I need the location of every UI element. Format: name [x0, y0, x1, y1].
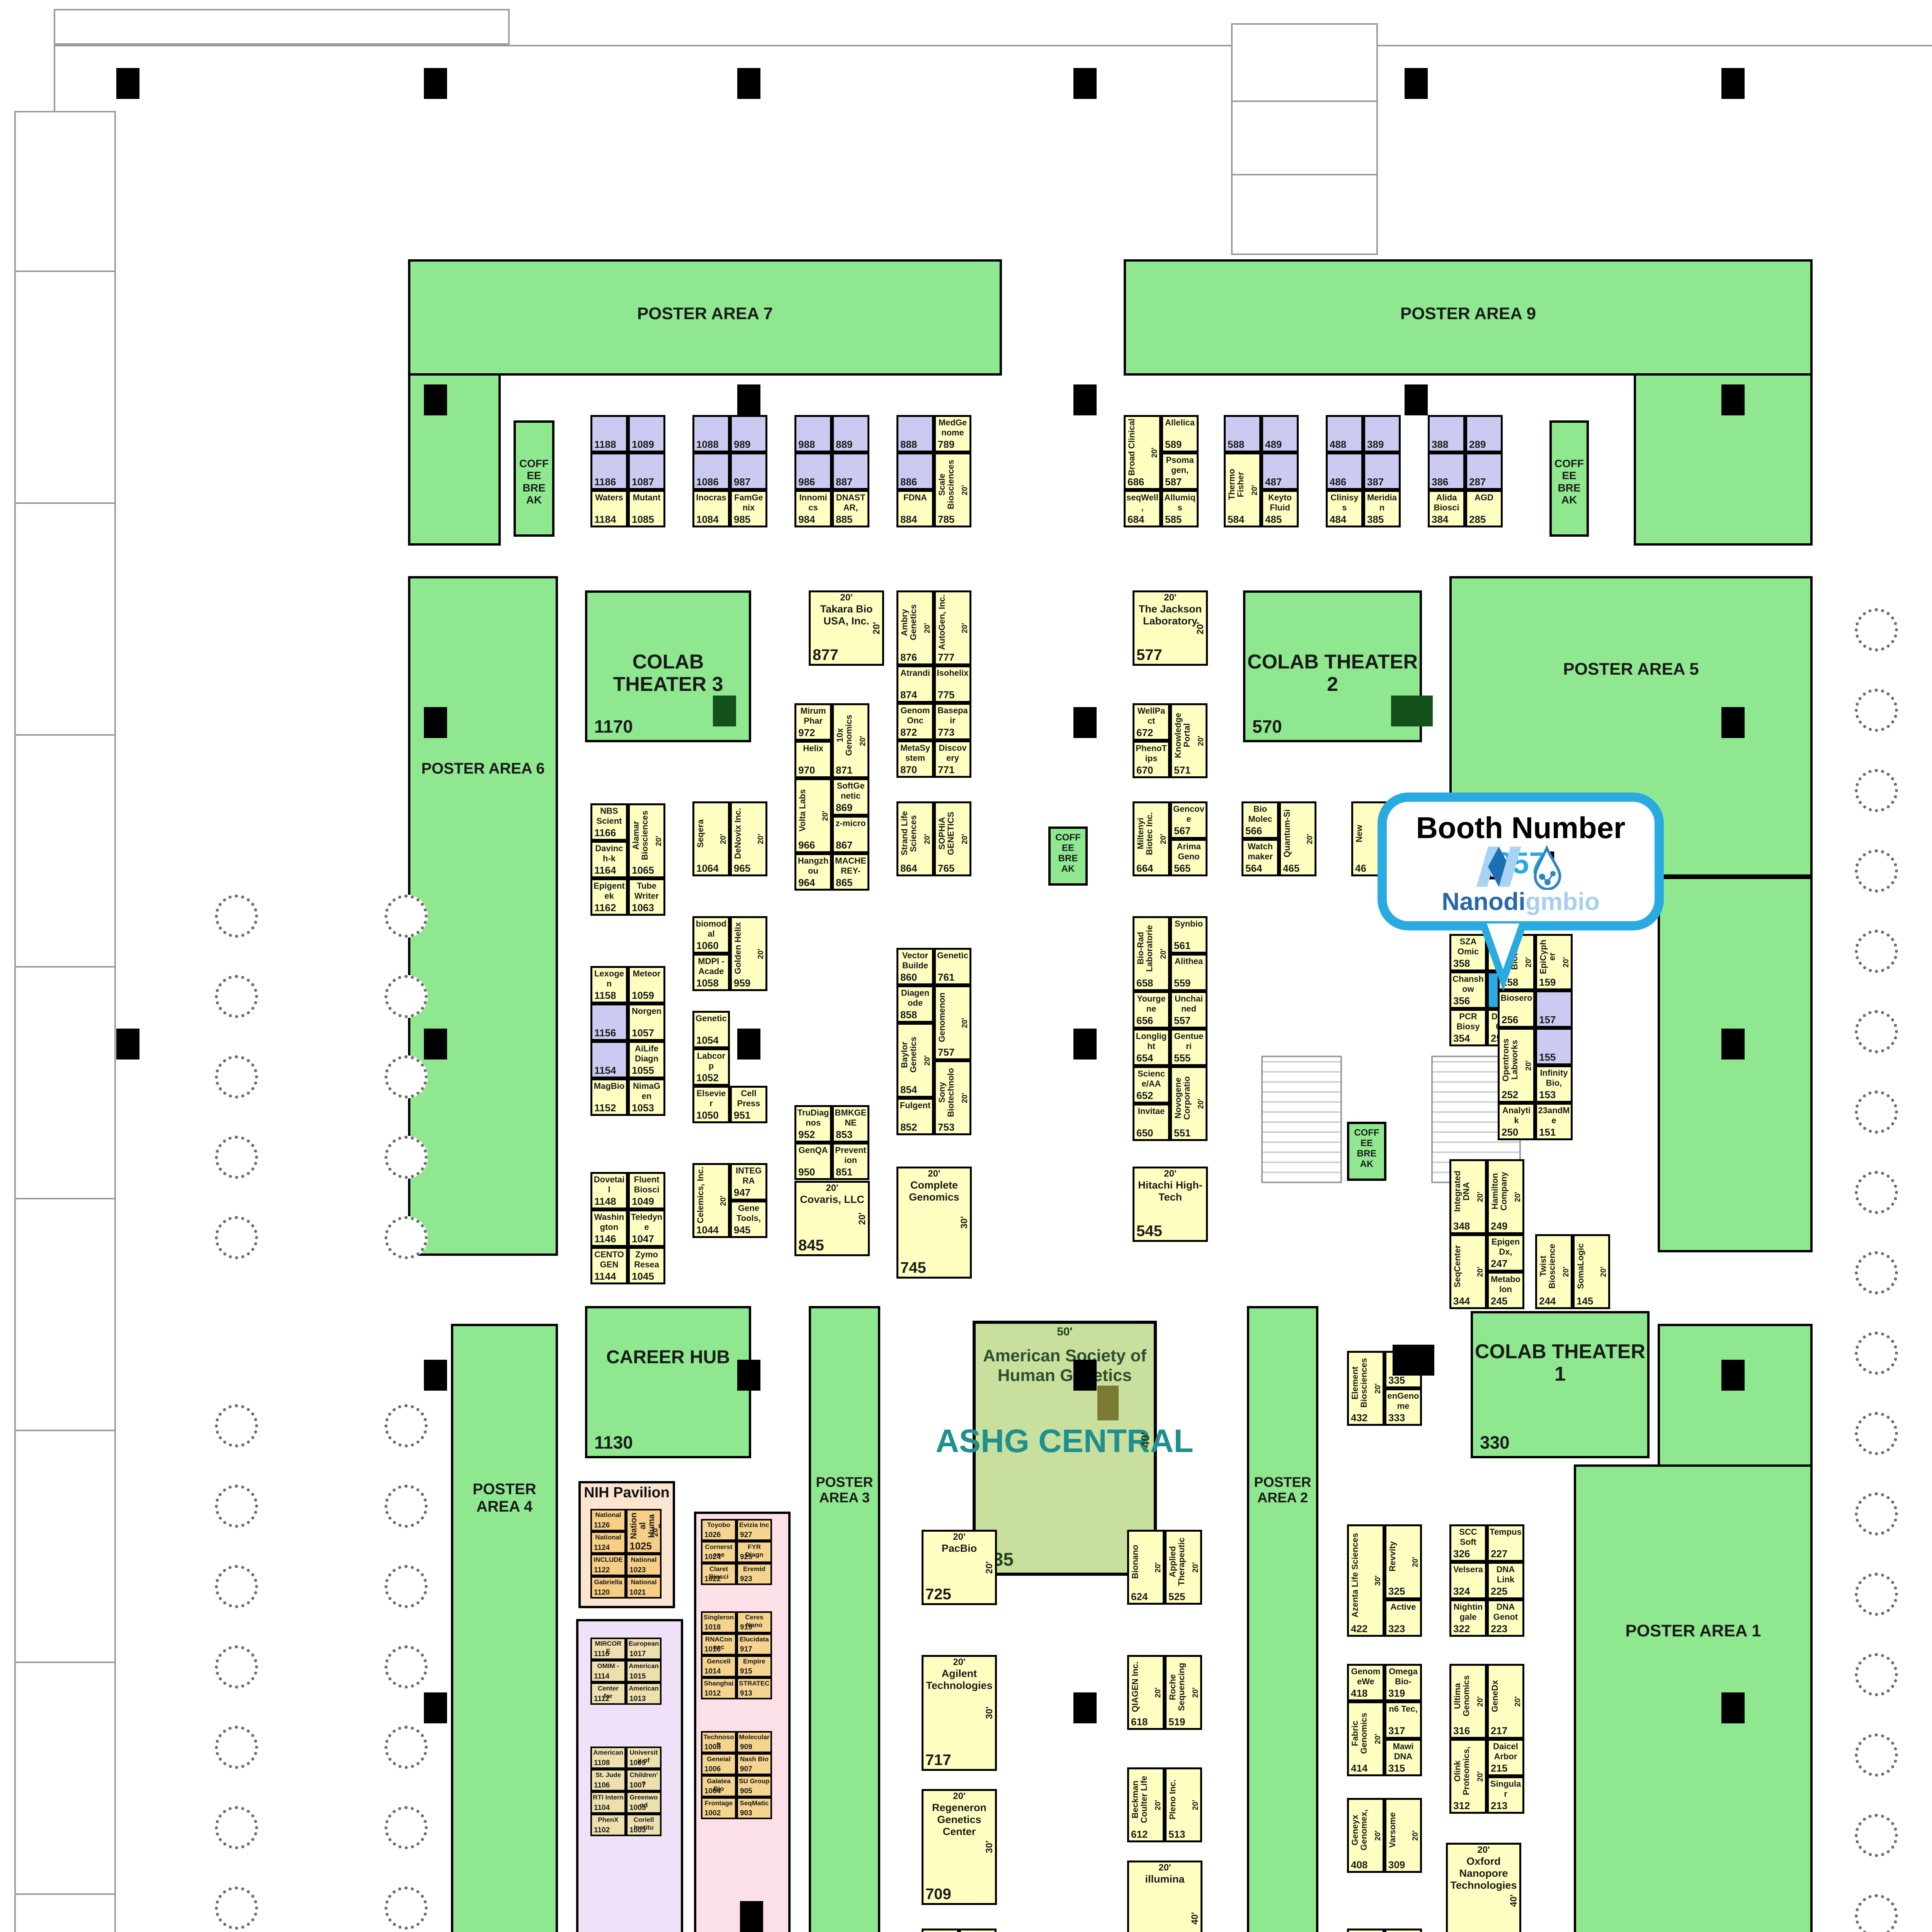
booth-1154[interactable]: 1154 — [590, 1041, 628, 1078]
booth-number: 1063 — [632, 902, 654, 914]
booth-1126[interactable]: National1126 — [590, 1509, 626, 1531]
booth-1065[interactable]: Alamar Biosciences20'1065 — [628, 803, 665, 878]
booth-1006[interactable]: Geneial1006 — [701, 1753, 736, 1775]
booth-1059[interactable]: Meteor1059 — [628, 966, 665, 1003]
booth-305[interactable]: BD Life305 — [1384, 1929, 1422, 1932]
booth-number: 672 — [1136, 727, 1153, 739]
booth-249[interactable]: Hamilton Company20'249 — [1487, 1159, 1524, 1234]
booth-905[interactable]: SU Group905 — [736, 1775, 772, 1797]
booth-1162[interactable]: Epigentek1162 — [590, 878, 628, 916]
booth-486[interactable]: 486 — [1326, 452, 1363, 490]
booth-513[interactable]: Pleno Inc.20'513 — [1165, 1767, 1202, 1842]
wall-line — [1231, 174, 1378, 175]
booth-551[interactable]: Novogene Corporatio20'551 — [1170, 1066, 1207, 1141]
booth-408[interactable]: Geneyx Genomex,20'408 — [1347, 1798, 1384, 1873]
booth-1104[interactable]: RTI Intern1104 — [590, 1791, 626, 1814]
booth-852[interactable]: Fulgent852 — [896, 1098, 934, 1135]
booth-1148[interactable]: Dovetail1148 — [590, 1172, 628, 1209]
booth-927[interactable]: Evizia Inc927 — [736, 1519, 772, 1541]
booth-519[interactable]: Roche Sequencing20'519 — [1165, 1655, 1202, 1730]
booth-1002[interactable]: Frontage1002 — [701, 1797, 736, 1819]
booth-1045[interactable]: Zymo Resea1045 — [628, 1247, 665, 1284]
zone-number: 1170 — [594, 716, 633, 737]
booth-654[interactable]: Longlight654 — [1133, 1029, 1170, 1066]
booth-number: 1156 — [594, 1027, 616, 1039]
booth-489[interactable]: 489 — [1261, 415, 1299, 452]
booth-1012[interactable]: Shanghai1012 — [701, 1677, 736, 1699]
booth-dimension: 20' — [961, 803, 969, 874]
booth-1016[interactable]: RNAConnec1016 — [701, 1633, 736, 1655]
zone-label: COFF EE BRE AK — [1552, 457, 1587, 506]
booth-947[interactable]: INTEGRA947 — [730, 1163, 767, 1201]
booth-959[interactable]: Golden Helix20'959 — [730, 916, 767, 991]
booth-1004[interactable]: Galatea Bio1004 — [701, 1775, 736, 1797]
booth-1015[interactable]: American1015 — [626, 1660, 662, 1682]
booth-217[interactable]: GeneDx20'217 — [1487, 1664, 1524, 1739]
booth-1058[interactable]: MDPI - Acade1058 — [692, 954, 730, 991]
pillar-theater — [1410, 696, 1433, 726]
booth-907[interactable]: Nash Bio907 — [736, 1753, 772, 1775]
booth-385[interactable]: Meridian385 — [1363, 490, 1401, 527]
booth-987[interactable]: 987 — [730, 452, 767, 490]
booth-name: Bio Molec — [1243, 803, 1277, 824]
booth-number: 970 — [798, 764, 815, 776]
booth-684[interactable]: seqWell,684 — [1124, 490, 1161, 527]
booth-884[interactable]: FDNA884 — [896, 490, 934, 527]
booth-885[interactable]: DNASTAR,885 — [832, 490, 869, 527]
booth-number: 487 — [1265, 476, 1282, 488]
booth-384[interactable]: Alida Biosci384 — [1428, 490, 1465, 527]
booth-664[interactable]: Miltenyi Biotec Inc.20'664 — [1133, 801, 1170, 876]
booth-1144[interactable]: CENTOGEN1144 — [590, 1247, 628, 1284]
booth-dimension: 20' — [984, 1532, 995, 1603]
booth-765[interactable]: SOPHiA GENETICS20'765 — [934, 801, 971, 876]
booth-name: FamGenix — [732, 492, 765, 513]
booth-1086[interactable]: 1086 — [692, 452, 730, 490]
booth-dimension: 20' — [961, 592, 969, 663]
booth-157[interactable]: 157 — [1535, 990, 1573, 1028]
booth-388[interactable]: 388 — [1428, 415, 1465, 452]
booth-1057[interactable]: Norgen1057 — [628, 1003, 665, 1041]
booth-dimension: 20' — [757, 918, 765, 989]
booth-851[interactable]: Prevention851 — [832, 1143, 869, 1180]
booth-577[interactable]: 20'The Jackson Laboratory20'577 — [1133, 590, 1208, 666]
booth-1014[interactable]: Gencell1014 — [701, 1655, 736, 1677]
booth-dimension: 20' — [1195, 592, 1206, 664]
booth-1156[interactable]: 1156 — [590, 1003, 628, 1041]
booth-925[interactable]: FYR Diagn925 — [736, 1541, 772, 1563]
booth-703[interactable]: Parse Bioscience20'703 — [959, 1929, 997, 1932]
booth-964[interactable]: Hangzhou964 — [794, 853, 832, 891]
ashg-dim-right: 40' — [1139, 1432, 1152, 1448]
booth-223[interactable]: DNA Genot223 — [1487, 1599, 1524, 1637]
booth-247[interactable]: EpigenDx,247 — [1487, 1234, 1524, 1272]
booth-number: 870 — [900, 764, 917, 776]
booth-1013[interactable]: American1013 — [626, 1682, 662, 1705]
booth-854[interactable]: Baylor Genetics20'854 — [896, 1023, 934, 1098]
booth-dimension: 20' — [961, 987, 969, 1058]
booth-316[interactable]: Ultima Genomics20'316 — [1449, 1664, 1487, 1739]
booth-1085[interactable]: Mutant1085 — [628, 490, 665, 527]
booth-1106[interactable]: St. Jude1106 — [590, 1769, 626, 1791]
booth-dimension: 30' — [984, 1657, 995, 1769]
booth-488[interactable]: 488 — [1326, 415, 1363, 452]
booth-dimension: 20' — [871, 592, 882, 664]
booth-1009[interactable]: University of1009 — [626, 1747, 662, 1769]
booth-1064[interactable]: Seqera20'1064 — [692, 801, 730, 876]
booth-658[interactable]: Bio-Rad Laboratorie20'658 — [1133, 916, 1170, 991]
booth-number: 860 — [900, 971, 917, 983]
booth-923[interactable]: Eremid923 — [736, 1563, 772, 1585]
booth-213[interactable]: Singular213 — [1487, 1776, 1524, 1814]
booth-289[interactable]: 289 — [1465, 415, 1503, 452]
booth-389[interactable]: 389 — [1363, 415, 1401, 452]
booth-1089[interactable]: 1089 — [628, 415, 665, 452]
booth-1112[interactable]: Center for1112 — [590, 1682, 626, 1705]
round-table — [215, 1726, 258, 1769]
round-table — [215, 1136, 258, 1179]
booth-326[interactable]: SCC Soft326 — [1449, 1524, 1487, 1562]
booth-988[interactable]: 988 — [794, 415, 832, 452]
booth-1146[interactable]: Washington1146 — [590, 1209, 628, 1247]
booth-860[interactable]: Vector Builde860 — [896, 948, 934, 985]
booth-432[interactable]: Element Biosciences20'432 — [1347, 1351, 1384, 1426]
booth-315[interactable]: Mawi DNA315 — [1384, 1739, 1422, 1776]
booth-802[interactable]: DNAnexus20'802 — [922, 1929, 959, 1932]
booth-number: 966 — [798, 839, 815, 851]
zone-poster-area-7[interactable]: POSTER AREA 7 — [408, 259, 1002, 376]
booth-325[interactable]: Revvity20'325 — [1384, 1524, 1422, 1599]
booth-618[interactable]: QIAGEN Inc.20'618 — [1127, 1655, 1165, 1730]
booth-503[interactable]: 20'illumina40'503 — [1127, 1861, 1202, 1932]
booth-1108[interactable]: American1108 — [590, 1747, 626, 1769]
booth-145[interactable]: SomaLogic20'145 — [1573, 1234, 1610, 1309]
booth-1188[interactable]: 1188 — [590, 415, 628, 452]
zone-poster-area-6[interactable]: POSTER AREA 6 — [408, 576, 558, 1256]
booth-414[interactable]: Fabric Genomics20'414 — [1347, 1701, 1384, 1776]
booth-1054[interactable]: Genetic1054 — [692, 1011, 730, 1048]
booth-name: Applied Therapeutic — [1168, 1533, 1189, 1590]
booth-559[interactable]: Alithea559 — [1170, 954, 1207, 991]
booth-1184[interactable]: Waters1184 — [590, 490, 628, 527]
booth-564[interactable]: Watchmaker564 — [1242, 839, 1279, 876]
booth-153[interactable]: Infinity Bio,153 — [1535, 1065, 1573, 1103]
booth-1025[interactable]: National Human20'1025 — [626, 1509, 662, 1554]
booth-1186[interactable]: 1186 — [590, 452, 628, 490]
booth-1164[interactable]: Davinch-k1164 — [590, 841, 628, 878]
booth-652[interactable]: Science/AA652 — [1133, 1066, 1170, 1104]
booth-589[interactable]: Allelica589 — [1161, 415, 1199, 452]
zone-poster-area-4[interactable]: POSTER AREA 4 — [451, 1324, 558, 1932]
booth-215[interactable]: Daicel Arbor215 — [1487, 1739, 1524, 1776]
booth-1122[interactable]: INCLUDE1122 — [590, 1554, 626, 1576]
booth-585[interactable]: Allumiqs585 — [1161, 490, 1199, 527]
booth-1060[interactable]: biomodal1060 — [692, 916, 730, 954]
booth-753[interactable]: Sony Biotechnolo20'753 — [934, 1060, 971, 1135]
booth-name: Celemics, Inc. — [696, 1167, 716, 1224]
booth-870[interactable]: MetaSystem870 — [896, 740, 934, 778]
booth-1124[interactable]: National1124 — [590, 1531, 626, 1554]
booth-565[interactable]: Arima Geno565 — [1170, 839, 1207, 876]
booth-1047[interactable]: Teledyne1047 — [628, 1209, 665, 1247]
booth-number: 1005 — [629, 1804, 646, 1812]
booth-227[interactable]: Tempus227 — [1487, 1524, 1524, 1562]
booth-650[interactable]: Invitae650 — [1133, 1104, 1170, 1141]
booth-name: Gentueri — [1172, 1031, 1206, 1051]
booth-561[interactable]: Synbio561 — [1170, 916, 1207, 954]
booth-name: St. Jude — [592, 1770, 624, 1779]
booth-853[interactable]: BMKGENE853 — [832, 1105, 869, 1143]
booth-number: 656 — [1136, 1015, 1153, 1027]
booth-1007[interactable]: Children's1007 — [626, 1769, 662, 1791]
booth-name: Novogene Corporatio — [1173, 1070, 1194, 1127]
booth-984[interactable]: Innomics984 — [794, 490, 832, 527]
booth-587[interactable]: Psomagen,587 — [1161, 452, 1199, 490]
booth-864[interactable]: Strand Life Sciences20'864 — [896, 801, 934, 876]
booth-945[interactable]: Gene Tools,945 — [730, 1201, 767, 1238]
booth-874[interactable]: Atrandi874 — [896, 665, 934, 703]
booth-number: 484 — [1330, 514, 1346, 526]
booth-386[interactable]: 386 — [1428, 452, 1465, 490]
booth-322[interactable]: Nightingale322 — [1449, 1599, 1487, 1637]
booth-785[interactable]: Scale Biosciences20'785 — [934, 452, 971, 527]
booth-566[interactable]: Bio Molec566 — [1242, 801, 1279, 839]
pillar — [1405, 68, 1428, 99]
booth-1018[interactable]: Singleron1018 — [701, 1611, 736, 1633]
booth-886[interactable]: 886 — [896, 452, 934, 490]
booth-686[interactable]: Broad Clinical20'686 — [1124, 415, 1161, 490]
zone-poster-area-1[interactable]: POSTER AREA 1 — [1574, 1464, 1813, 1932]
booth-867[interactable]: z-micro867 — [832, 816, 869, 853]
booth-256[interactable]: Biosero256 — [1498, 990, 1535, 1028]
booth-903[interactable]: SeqMatic903 — [736, 1797, 772, 1819]
booth-557[interactable]: Unchained557 — [1170, 991, 1207, 1029]
booth-672[interactable]: WellPact672 — [1133, 703, 1170, 741]
booth-877[interactable]: 20'Takara Bio USA, Inc.20'877 — [809, 590, 884, 666]
booth-624[interactable]: Bionano20'624 — [1127, 1530, 1165, 1605]
booth-869[interactable]: SoftGenetic869 — [832, 778, 869, 816]
booth-588[interactable]: 588 — [1224, 415, 1261, 452]
booth-871[interactable]: 10x Genomics20'871 — [832, 703, 869, 778]
booth-name: AGD — [1467, 492, 1501, 503]
round-table — [1855, 689, 1898, 732]
booth-number: 1054 — [696, 1034, 719, 1046]
booth-1023[interactable]: National1023 — [626, 1554, 662, 1576]
booth-285[interactable]: AGD285 — [1465, 490, 1503, 527]
booth-309[interactable]: Varsome20'309 — [1384, 1798, 1422, 1873]
booth-1084[interactable]: Inocras1084 — [692, 490, 730, 527]
booth-name: Geneial — [702, 1755, 735, 1763]
booth-612[interactable]: Beckman Coulter Life20'612 — [1127, 1767, 1165, 1842]
booth-name: Genetic — [936, 950, 969, 961]
booth-567[interactable]: Gencove567 — [1170, 801, 1207, 839]
zone-poster-area-9[interactable]: POSTER AREA 9 — [1124, 259, 1813, 376]
booth-number: 1050 — [696, 1109, 719, 1121]
booth-287[interactable]: 287 — [1465, 452, 1503, 490]
booth-1053[interactable]: NimaGen1053 — [628, 1078, 665, 1116]
booth-1003[interactable]: Coriell Institu1003 — [626, 1814, 662, 1836]
pillar — [1721, 1360, 1745, 1391]
zone-coffee-break-1[interactable]: COFF EE BRE AK — [514, 420, 554, 537]
booth-858[interactable]: Diagenode858 — [896, 985, 934, 1023]
booth-number: 853 — [836, 1129, 852, 1141]
booth-203[interactable]: 20'Oxford Nanopore Technologies40'203 — [1446, 1843, 1521, 1932]
booth-1017[interactable]: European1017 — [626, 1638, 662, 1660]
booth-777[interactable]: AutoGen, Inc.20'777 — [934, 590, 971, 665]
booth-name: Discovery — [936, 742, 969, 763]
booth-1088[interactable]: 1088 — [692, 415, 730, 452]
booth-525[interactable]: Applied Therapeutic20'525 — [1165, 1530, 1202, 1605]
booth-773[interactable]: Basepair773 — [934, 703, 971, 740]
booth-319[interactable]: Omega Bio-319 — [1384, 1664, 1422, 1701]
booth-317[interactable]: n6 Tec,317 — [1384, 1701, 1422, 1739]
booth-dimension: 40' — [1190, 1862, 1201, 1932]
booth-465[interactable]: Quantum-Si20'465 — [1279, 801, 1316, 876]
booth-909[interactable]: Molecular909 — [736, 1731, 772, 1753]
booth-354[interactable]: PCR Biosy354 — [1449, 1009, 1487, 1046]
booth-872[interactable]: GenomOnc872 — [896, 703, 934, 740]
booth-1008[interactable]: Technosoft1008 — [701, 1731, 736, 1753]
booth-1022[interactable]: Claret Biosci1022 — [701, 1563, 736, 1585]
booth-950[interactable]: GenQA950 — [794, 1143, 832, 1180]
booth-717[interactable]: 20'Agilent Technologies30'717 — [922, 1655, 997, 1771]
booth-159[interactable]: EpiCypher20'159 — [1535, 934, 1573, 990]
booth-151[interactable]: 23andMe151 — [1535, 1103, 1573, 1140]
booth-917[interactable]: Elucidata917 — [736, 1633, 772, 1655]
booth-155[interactable]: 155 — [1535, 1028, 1573, 1065]
booth-250[interactable]: Analytik250 — [1498, 1103, 1535, 1140]
booth-1049[interactable]: Fluent Biosci1049 — [628, 1172, 665, 1209]
booth-966[interactable]: Volta Labs20'966 — [794, 778, 832, 853]
booth-965[interactable]: DeNovix Inc.20'965 — [730, 801, 767, 876]
booth-number: 1146 — [594, 1233, 616, 1245]
booth-775[interactable]: Isohelix775 — [934, 665, 971, 703]
zone-poster-area-3[interactable]: POSTER AREA 3 — [809, 1306, 880, 1932]
booth-789[interactable]: MedGenome789 — [934, 415, 971, 452]
round-table — [384, 1216, 428, 1259]
booth-344[interactable]: SeqCenter20'344 — [1449, 1234, 1487, 1309]
booth-333[interactable]: enGenome333 — [1384, 1388, 1422, 1426]
booth-number: 1053 — [632, 1102, 654, 1114]
booth-919[interactable]: Ceres Nano919 — [736, 1611, 772, 1633]
booth-952[interactable]: TruDiagnos952 — [794, 1105, 832, 1143]
zone-coffee-break-2[interactable]: COFF EE BRE AK — [1549, 420, 1589, 537]
booth-1166[interactable]: NBS Scient1166 — [590, 803, 628, 841]
booth-1026[interactable]: Toyobo1026 — [701, 1519, 736, 1541]
booth-986[interactable]: 986 — [794, 452, 832, 490]
booth-252[interactable]: Opentrons Labworks20'252 — [1498, 1028, 1535, 1103]
booth-865[interactable]: MACHEREY-865 — [832, 853, 869, 891]
booth-972[interactable]: Mirum Phar972 — [794, 703, 832, 741]
booth-1152[interactable]: MagBio1152 — [590, 1078, 628, 1116]
booth-name: Frontage — [702, 1799, 735, 1807]
booth-number: 852 — [900, 1121, 917, 1133]
booth-876[interactable]: Ambry Genetics20'876 — [896, 590, 934, 665]
booth-1158[interactable]: Lexogen1158 — [590, 966, 628, 1003]
booth-915[interactable]: Empire915 — [736, 1655, 772, 1677]
booth-887[interactable]: 887 — [832, 452, 869, 490]
booth-1005[interactable]: Greenwood1005 — [626, 1791, 662, 1814]
booth-323[interactable]: Active323 — [1384, 1599, 1422, 1637]
booth-1024[interactable]: Cornerstone1024 — [701, 1541, 736, 1563]
round-table — [1855, 608, 1898, 651]
booth-422[interactable]: Azenta Life Sciences30'422 — [1347, 1524, 1384, 1637]
booth-485[interactable]: Keyto Fluid485 — [1261, 490, 1299, 527]
booth-244[interactable]: Twist Bioscience20'244 — [1535, 1234, 1573, 1309]
booth-1052[interactable]: Labcorp1052 — [692, 1048, 730, 1086]
booth-name: Fulgent — [898, 1100, 932, 1111]
booth-1044[interactable]: Celemics, Inc.20'1044 — [692, 1163, 730, 1238]
booth-725[interactable]: 20'PacBio20'725 — [922, 1530, 997, 1605]
booth-dimension: 20' — [1476, 1236, 1485, 1307]
booth-555[interactable]: Gentueri555 — [1170, 1029, 1207, 1066]
booth-1102[interactable]: PhenX1102 — [590, 1814, 626, 1836]
booth-name: Tempus — [1489, 1526, 1522, 1537]
booth-745[interactable]: 20'Complete Genomics30'745 — [896, 1167, 972, 1279]
booth-1063[interactable]: Tube Writer1063 — [628, 878, 665, 916]
zone-coffee-break-3[interactable]: COFF EE BRE AK — [1048, 827, 1088, 886]
booth-951[interactable]: Cell Press951 — [730, 1086, 767, 1123]
zone-colab-theater-1[interactable]: COLAB THEATER 1330 — [1471, 1311, 1650, 1458]
booth-487[interactable]: 487 — [1261, 452, 1299, 490]
booth-1050[interactable]: Elsevier1050 — [692, 1086, 730, 1123]
booth-1120[interactable]: Gabriella1120 — [590, 1576, 626, 1599]
booth-312[interactable]: Olink Proteomics,20'312 — [1449, 1739, 1487, 1814]
booth-889[interactable]: 889 — [832, 415, 869, 452]
zone-poster-area-2[interactable]: POSTER AREA 2 — [1247, 1306, 1318, 1932]
booth-name: seqWell, — [1126, 492, 1159, 513]
booth-245[interactable]: Metabolon245 — [1487, 1272, 1524, 1309]
booth-584[interactable]: Thermo Fisher20'584 — [1224, 452, 1261, 527]
booth-name: American — [628, 1662, 660, 1670]
expo-floorplan: 50' American Society of Human Genetics A… — [0, 0, 1932, 1932]
booth-name: GenomOnc — [898, 705, 932, 726]
booth-number: 225 — [1491, 1585, 1507, 1597]
booth-888[interactable]: 888 — [896, 415, 934, 452]
booth-913[interactable]: STRATEC913 — [736, 1677, 772, 1699]
zone-poster-area-5-leg[interactable] — [1658, 877, 1813, 1252]
booth-1087[interactable]: 1087 — [628, 452, 665, 490]
zone-career-hub[interactable]: CAREER HUB1130 — [585, 1306, 751, 1458]
booth-970[interactable]: Helix970 — [794, 741, 832, 778]
booth-761[interactable]: Genetic761 — [934, 948, 971, 985]
booth-number: 907 — [740, 1765, 752, 1774]
booth-845[interactable]: 20'Covaris, LLC20'845 — [794, 1181, 870, 1256]
booth-771[interactable]: Discovery771 — [934, 740, 971, 778]
booth-number: 652 — [1136, 1090, 1153, 1102]
booth-709[interactable]: 20'Regeneron Genetics Center30'709 — [922, 1789, 997, 1905]
zone-coffee-break-4[interactable]: COFF EE BRE AK — [1347, 1122, 1386, 1181]
booth-545[interactable]: 20'Hitachi High-Tech545 — [1133, 1167, 1208, 1242]
booth-1116[interactable]: MIRCORE1116 — [590, 1638, 626, 1660]
booth-324[interactable]: Velsera324 — [1449, 1562, 1487, 1599]
booth-348[interactable]: Integrated DNA20'348 — [1449, 1159, 1487, 1234]
booth-1021[interactable]: National1021 — [626, 1576, 662, 1599]
booth-670[interactable]: PhenoTips670 — [1133, 741, 1170, 778]
booth-989[interactable]: 989 — [730, 415, 767, 452]
booth-404[interactable]: Wasatch404 — [1347, 1929, 1384, 1932]
booth-1114[interactable]: OMIM -1114 — [590, 1660, 626, 1682]
booth-757[interactable]: Genomenon20'757 — [934, 985, 971, 1060]
booth-571[interactable]: Knowledge Portal20'571 — [1170, 703, 1207, 778]
booth-1055[interactable]: AiLife Diagn1055 — [628, 1041, 665, 1078]
booth-387[interactable]: 387 — [1363, 452, 1401, 490]
booth-656[interactable]: Yourgene656 — [1133, 991, 1170, 1029]
booth-418[interactable]: GenomeWe418 — [1347, 1664, 1384, 1701]
booth-484[interactable]: Clinisys484 — [1326, 490, 1363, 527]
booth-985[interactable]: FamGenix985 — [730, 490, 767, 527]
booth-225[interactable]: DNA Link225 — [1487, 1562, 1524, 1599]
